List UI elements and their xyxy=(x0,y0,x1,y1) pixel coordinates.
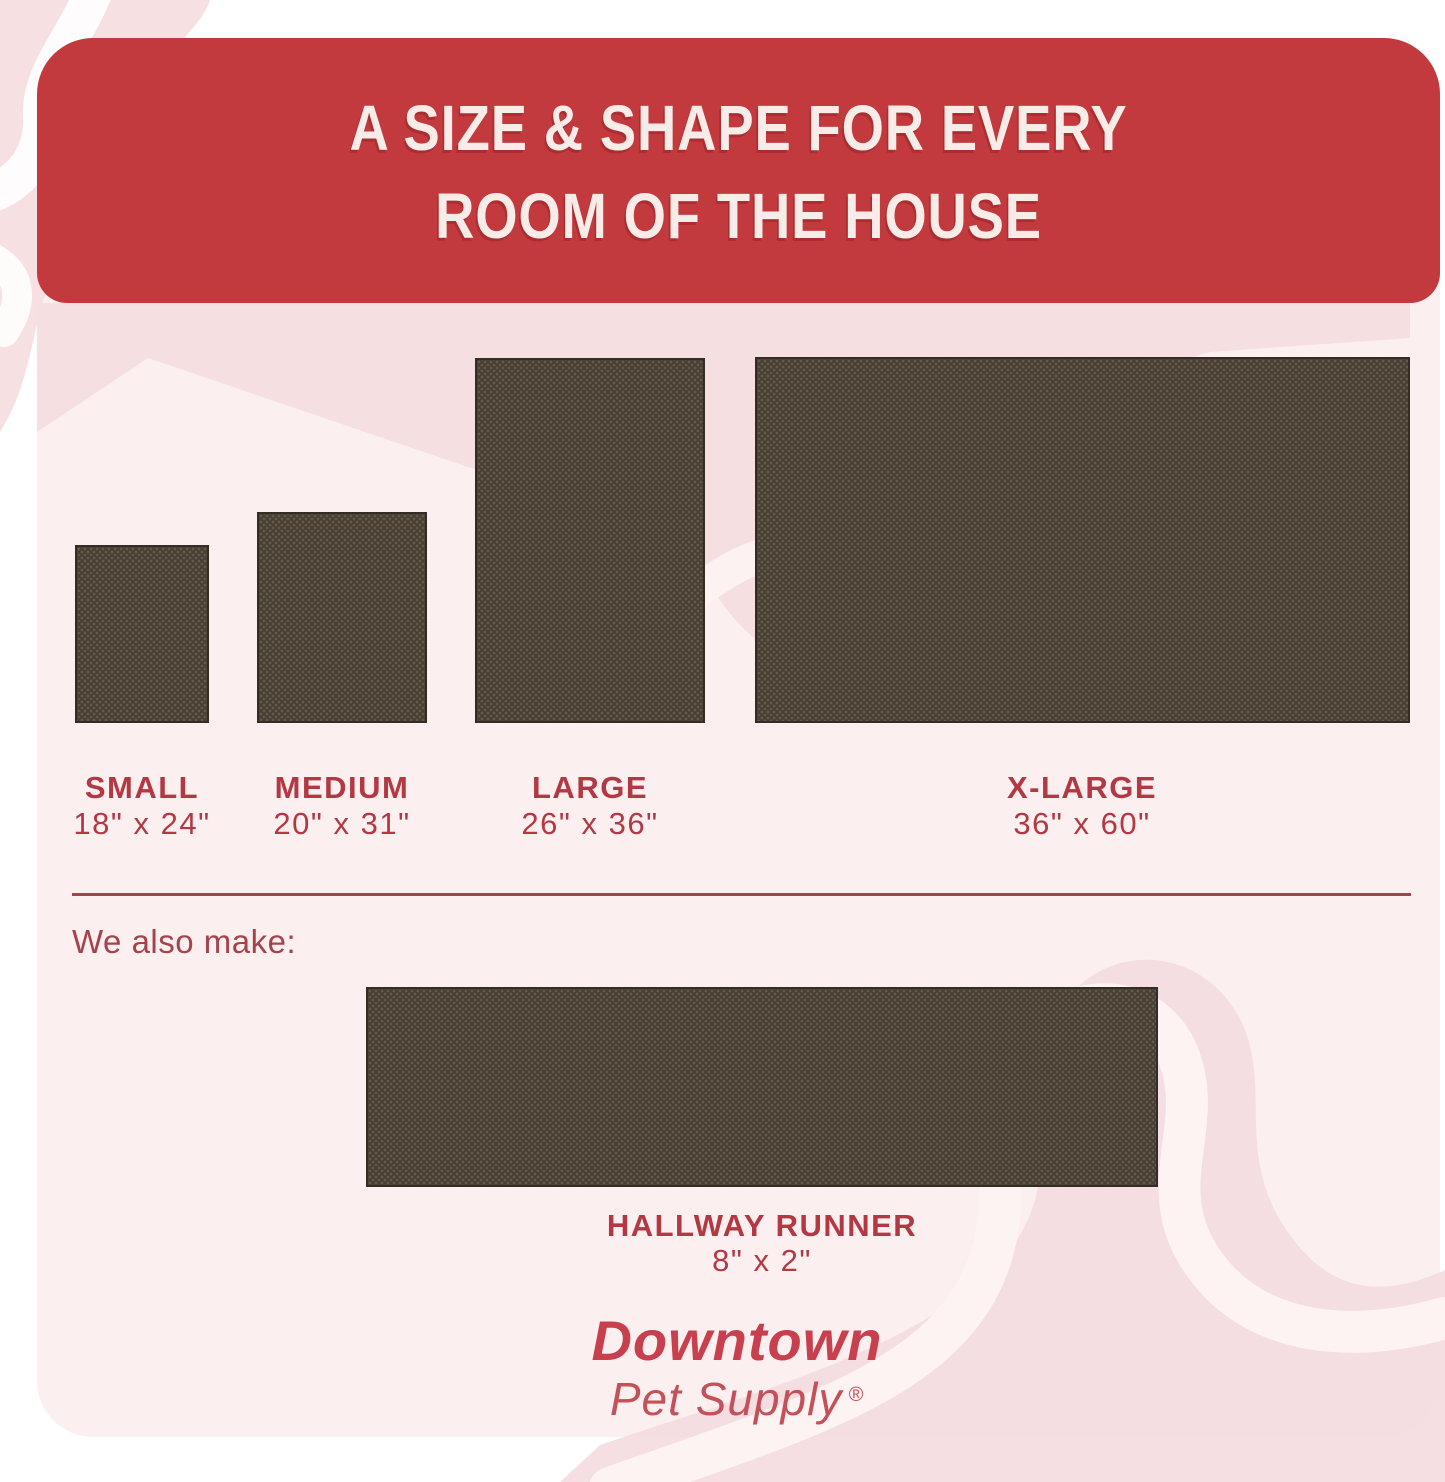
rug-swatch-large xyxy=(475,358,705,723)
header-banner: A SIZE & SHAPE FOR EVERY ROOM OF THE HOU… xyxy=(37,38,1440,303)
page-title-line2: ROOM OF THE HOUSE xyxy=(142,172,1335,260)
size-dimensions-xlarge: 36" x 60" xyxy=(922,806,1242,842)
rug-swatch-hallway-runner xyxy=(366,987,1158,1187)
rug-swatch-medium xyxy=(257,512,427,723)
rug-swatch-xlarge xyxy=(755,357,1410,723)
brand-logo: Downtown Pet Supply® xyxy=(437,1312,1037,1424)
brand-name: Downtown xyxy=(437,1312,1037,1370)
size-dimensions-large: 26" x 36" xyxy=(430,806,750,842)
content-layer: A SIZE & SHAPE FOR EVERY ROOM OF THE HOU… xyxy=(0,0,1445,1482)
registered-trademark-symbol: ® xyxy=(848,1384,864,1406)
section-divider xyxy=(72,893,1411,896)
brand-tagline-text: Pet Supply xyxy=(610,1373,842,1425)
runner-dimensions: 8" x 2" xyxy=(602,1243,922,1279)
rug-swatch-small xyxy=(75,545,209,723)
size-label-xlarge: X-LARGE xyxy=(922,770,1242,806)
infographic-page: A SIZE & SHAPE FOR EVERY ROOM OF THE HOU… xyxy=(0,0,1445,1482)
brand-tagline: Pet Supply® xyxy=(437,1370,1037,1424)
we-also-make-label: We also make: xyxy=(72,923,296,961)
runner-label: HALLWAY RUNNER xyxy=(602,1208,922,1244)
size-label-large: LARGE xyxy=(430,770,750,806)
page-title-line1: A SIZE & SHAPE FOR EVERY xyxy=(142,84,1335,172)
